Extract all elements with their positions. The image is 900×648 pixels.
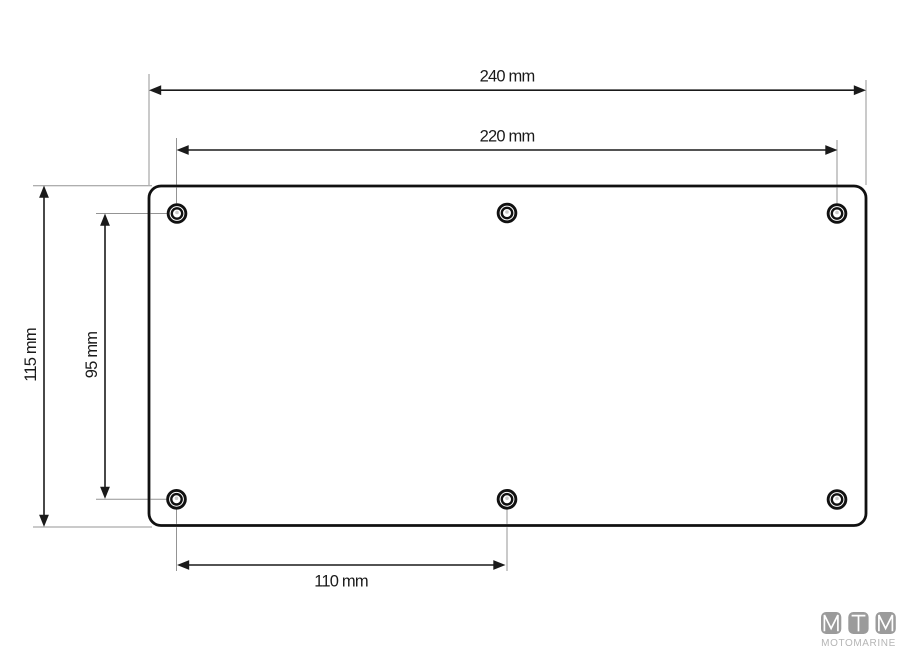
svg-text:220 mm: 220 mm [480, 128, 535, 146]
svg-text:95 mm: 95 mm [83, 332, 101, 378]
svg-text:115 mm: 115 mm [22, 328, 40, 382]
svg-text:MOTOMARINE: MOTOMARINE [821, 638, 896, 648]
svg-text:110 mm: 110 mm [314, 573, 368, 591]
svg-text:240 mm: 240 mm [480, 68, 535, 86]
